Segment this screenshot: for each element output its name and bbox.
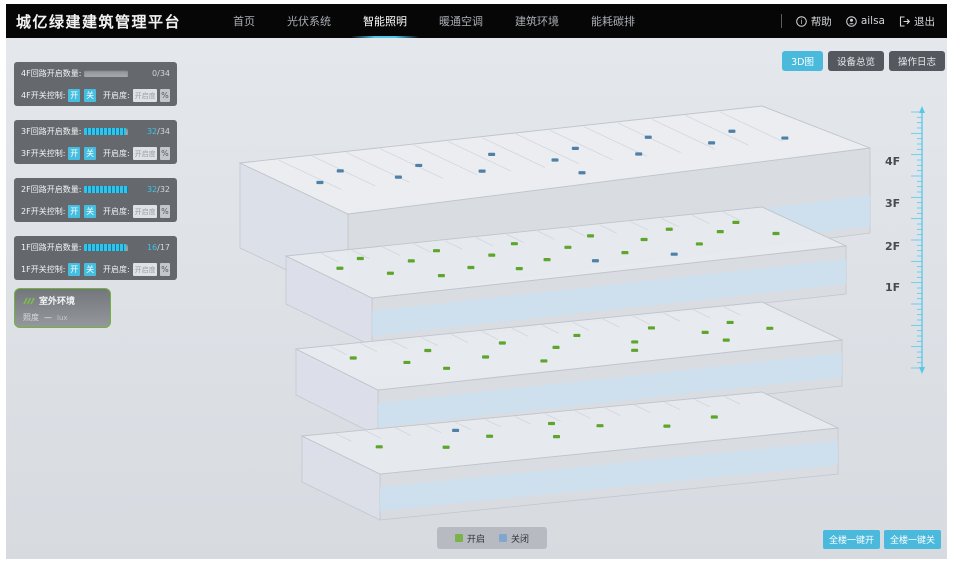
dim-percent-button[interactable]: % bbox=[160, 205, 170, 218]
illuminance-icon bbox=[23, 296, 35, 306]
switch-control-label: 3F开关控制: bbox=[21, 148, 65, 159]
legend-off-swatch bbox=[499, 534, 507, 542]
view-toolbar: 3D图 设备总览 操作日志 bbox=[782, 51, 945, 71]
switch-control-label: 2F开关控制: bbox=[21, 206, 65, 217]
floor-panel-1f: 1F回路开启数量: 16/17 1F开关控制: 开 关 开启度: % bbox=[14, 236, 177, 280]
circuit-count-value: 0/34 bbox=[152, 69, 170, 78]
circuit-progress-bar bbox=[84, 186, 128, 193]
circuit-progress-bar bbox=[84, 244, 128, 251]
switch-control-label: 1F开关控制: bbox=[21, 264, 65, 275]
outdoor-env-panel: 室外环境 照度 — lux bbox=[14, 288, 111, 328]
legend-on-label: 开启 bbox=[467, 532, 485, 545]
all-on-button[interactable]: 全楼一键开 bbox=[823, 530, 880, 549]
switch-on-button[interactable]: 开 bbox=[68, 205, 80, 218]
floor-ruler[interactable] bbox=[911, 106, 925, 374]
floor-label-3f[interactable]: 3F bbox=[885, 197, 900, 210]
legend-on-swatch bbox=[455, 534, 463, 542]
view-3d-button[interactable]: 3D图 bbox=[782, 51, 823, 71]
floor-panel-3f: 3F回路开启数量: 32/34 3F开关控制: 开 关 开启度: % bbox=[14, 120, 177, 164]
circuit-count-label: 4F回路开启数量: bbox=[21, 68, 81, 79]
dim-level-label: 开启度: bbox=[103, 264, 130, 275]
switch-on-button[interactable]: 开 bbox=[68, 263, 80, 276]
illuminance-unit: lux bbox=[57, 314, 68, 322]
operation-log-button[interactable]: 操作日志 bbox=[889, 51, 945, 71]
all-off-button[interactable]: 全楼一键关 bbox=[884, 530, 941, 549]
dim-percent-button[interactable]: % bbox=[160, 147, 170, 160]
switch-control-label: 4F开关控制: bbox=[21, 90, 65, 101]
dim-level-label: 开启度: bbox=[103, 206, 130, 217]
circuit-count-value: 16/17 bbox=[147, 243, 170, 252]
dim-level-input[interactable] bbox=[133, 147, 157, 160]
dim-level-input[interactable] bbox=[133, 89, 157, 102]
floor-panel-4f: 4F回路开启数量: 0/34 4F开关控制: 开 关 开启度: % bbox=[14, 62, 177, 106]
legend-off-label: 关闭 bbox=[511, 532, 529, 545]
dim-level-input[interactable] bbox=[133, 205, 157, 218]
illuminance-label: 照度 bbox=[23, 312, 39, 323]
floor-label-4f[interactable]: 4F bbox=[885, 155, 900, 168]
legend-on-item: 开启 bbox=[455, 532, 485, 545]
switch-on-button[interactable]: 开 bbox=[68, 89, 80, 102]
switch-off-button[interactable]: 关 bbox=[84, 263, 96, 276]
circuit-progress-bar bbox=[84, 128, 128, 135]
floor-label-2f[interactable]: 2F bbox=[885, 240, 900, 253]
circuit-count-label: 1F回路开启数量: bbox=[21, 242, 81, 253]
circuit-count-value: 32/32 bbox=[147, 185, 170, 194]
outdoor-panel-title: 室外环境 bbox=[39, 294, 75, 307]
dim-level-input[interactable] bbox=[133, 263, 157, 276]
switch-off-button[interactable]: 关 bbox=[84, 89, 96, 102]
dim-level-label: 开启度: bbox=[103, 90, 130, 101]
circuit-count-value: 32/34 bbox=[147, 127, 170, 136]
circuit-progress-bar bbox=[84, 70, 128, 77]
dim-level-label: 开启度: bbox=[103, 148, 130, 159]
circuit-count-label: 3F回路开启数量: bbox=[21, 126, 81, 137]
switch-on-button[interactable]: 开 bbox=[68, 147, 80, 160]
legend-off-item: 关闭 bbox=[499, 532, 529, 545]
dim-percent-button[interactable]: % bbox=[160, 263, 170, 276]
switch-off-button[interactable]: 关 bbox=[84, 205, 96, 218]
floor-panel-2f: 2F回路开启数量: 32/32 2F开关控制: 开 关 开启度: % bbox=[14, 178, 177, 222]
light-status-legend: 开启 关闭 bbox=[437, 527, 547, 549]
building-actions: 全楼一键开 全楼一键关 bbox=[823, 530, 941, 549]
device-overview-button[interactable]: 设备总览 bbox=[828, 51, 884, 71]
circuit-count-label: 2F回路开启数量: bbox=[21, 184, 81, 195]
illuminance-value: — bbox=[44, 313, 52, 322]
app-window: 城亿绿建建筑管理平台 首页 光伏系统 智能照明 暖通空调 建筑环境 能耗碳排 i… bbox=[0, 0, 953, 564]
dim-percent-button[interactable]: % bbox=[160, 89, 170, 102]
floor-label-1f[interactable]: 1F bbox=[885, 281, 900, 294]
switch-off-button[interactable]: 关 bbox=[84, 147, 96, 160]
